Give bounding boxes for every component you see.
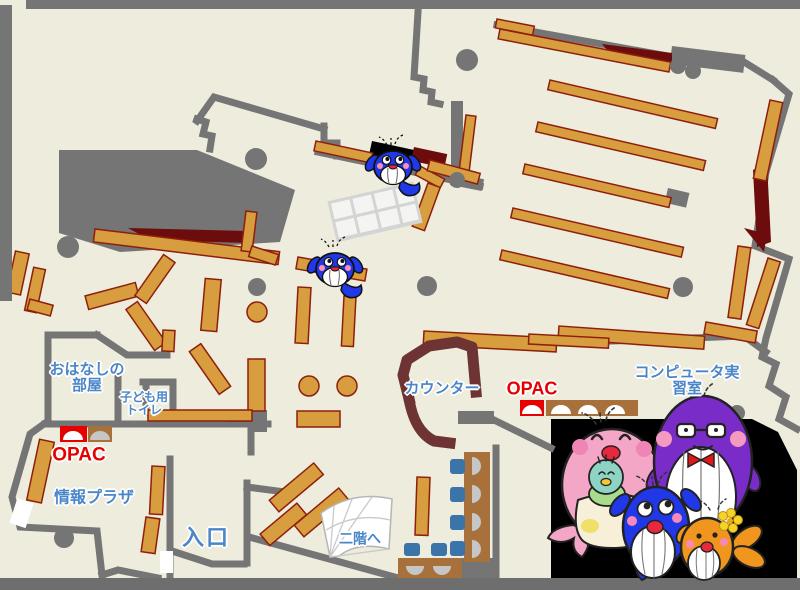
library-floor-map: おはなしの 部屋 子ども用 トイレ OPAC 情報プラザ 入口 二階へ カウンタ…	[0, 0, 800, 590]
floor-plan-canvas	[0, 0, 800, 590]
opac-terminal-left	[60, 426, 112, 442]
stairs-to-2f	[321, 496, 392, 557]
opac-terminal-right	[520, 400, 638, 416]
